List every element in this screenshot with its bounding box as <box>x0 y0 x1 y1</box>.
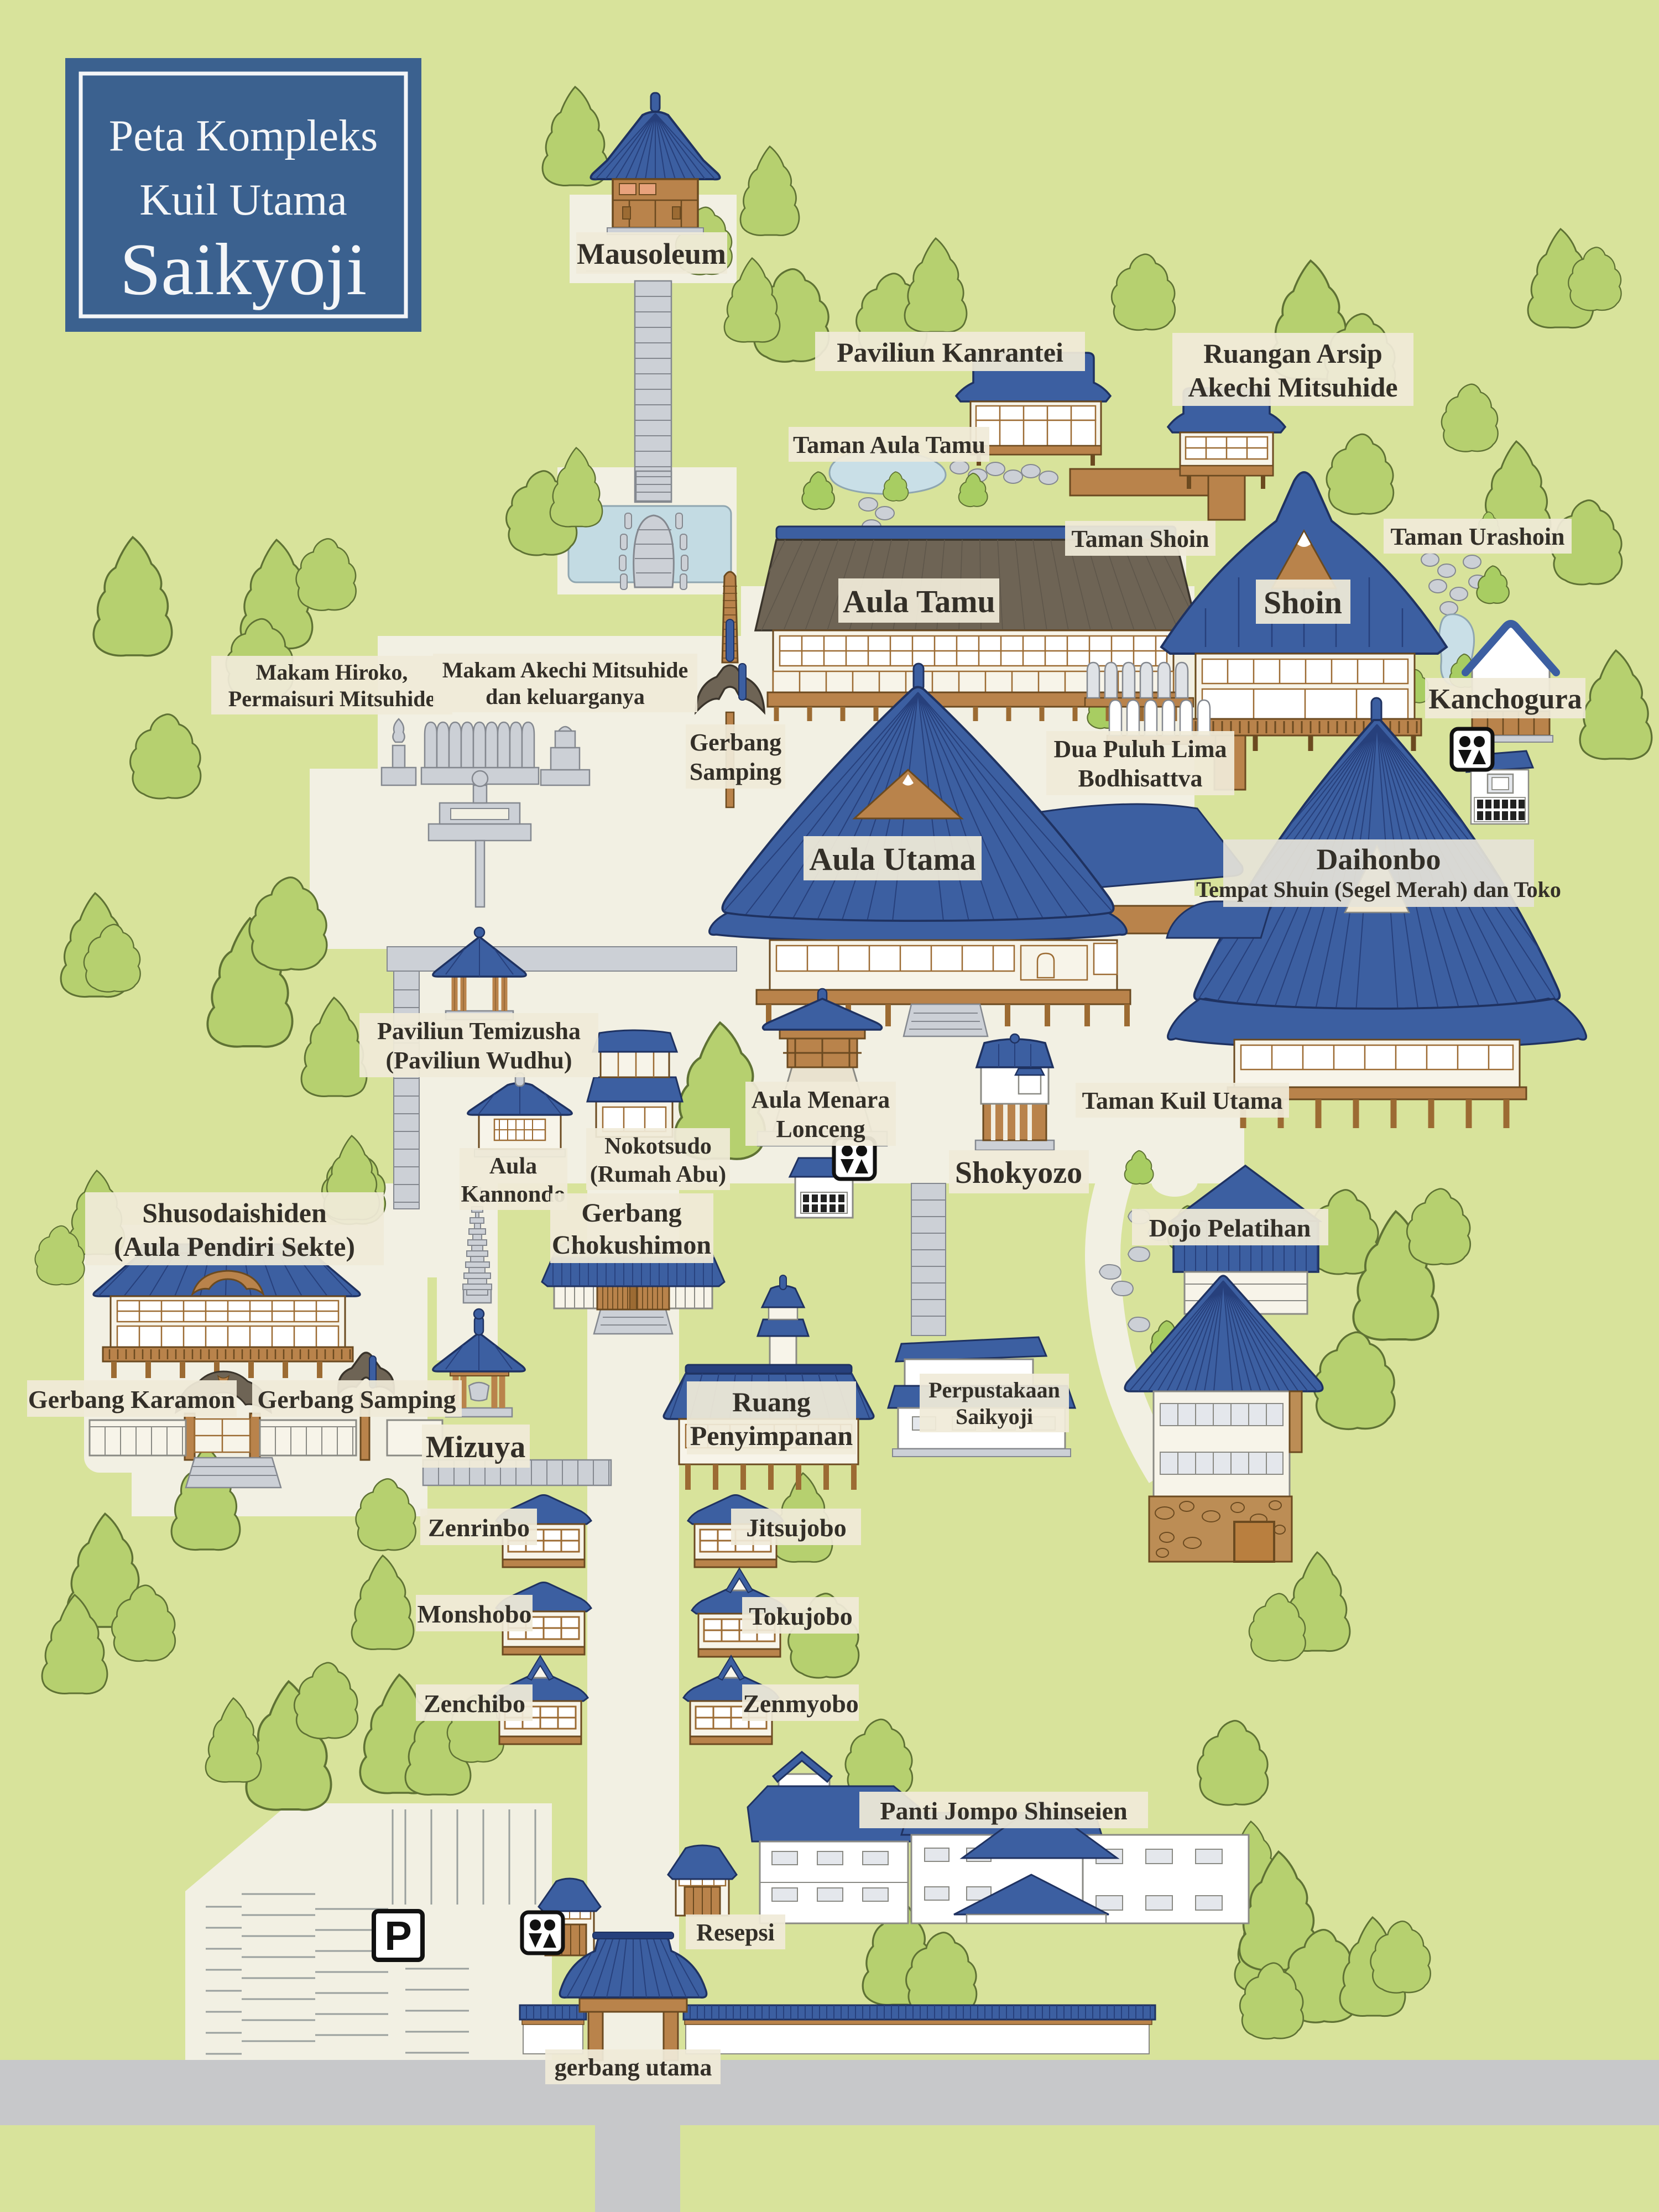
svg-text:Mizuya: Mizuya <box>426 1430 525 1464</box>
svg-text:Gerbang Karamon: Gerbang Karamon <box>28 1385 235 1413</box>
svg-text:Peta Kompleks: Peta Kompleks <box>109 112 378 160</box>
svg-text:Aula Tamu: Aula Tamu <box>843 583 995 619</box>
svg-text:Makam Hiroko,: Makam Hiroko, <box>256 660 408 685</box>
svg-text:gerbang utama: gerbang utama <box>555 2054 712 2081</box>
svg-text:Zenmyobo: Zenmyobo <box>743 1689 859 1718</box>
svg-text:Chokushimon: Chokushimon <box>552 1230 711 1260</box>
svg-text:Gerbang: Gerbang <box>690 729 781 756</box>
svg-text:Panti Jompo Shinseien: Panti Jompo Shinseien <box>880 1797 1127 1825</box>
svg-text:Daihonbo: Daihonbo <box>1316 843 1441 876</box>
svg-text:Perpustakaan: Perpustakaan <box>928 1378 1060 1402</box>
svg-text:Aula Menara: Aula Menara <box>752 1086 890 1113</box>
svg-text:Tempat Shuin (Segel Merah) dan: Tempat Shuin (Segel Merah) dan Toko <box>1196 877 1561 902</box>
svg-text:Kuil Utama: Kuil Utama <box>139 176 347 225</box>
svg-text:dan keluarganya: dan keluarganya <box>486 684 645 709</box>
svg-text:Gerbang: Gerbang <box>581 1198 681 1228</box>
svg-text:Ruang: Ruang <box>732 1386 811 1417</box>
svg-text:Dua Puluh Lima: Dua Puluh Lima <box>1054 735 1227 763</box>
svg-text:Aula: Aula <box>489 1154 537 1179</box>
svg-text:Makam Akechi Mitsuhide: Makam Akechi Mitsuhide <box>442 658 688 682</box>
svg-text:Bodhisattva: Bodhisattva <box>1078 765 1203 792</box>
svg-text:Paviliun Kanrantei: Paviliun Kanrantei <box>837 337 1063 368</box>
svg-text:Resepsi: Resepsi <box>696 1919 775 1946</box>
svg-text:Shoin: Shoin <box>1264 585 1342 620</box>
svg-text:Samping: Samping <box>690 758 781 785</box>
svg-text:Dojo Pelatihan: Dojo Pelatihan <box>1149 1214 1311 1242</box>
svg-text:(Rumah Abu): (Rumah Abu) <box>590 1162 726 1187</box>
svg-text:Zenchibo: Zenchibo <box>424 1689 525 1718</box>
svg-text:Zenrinbo: Zenrinbo <box>428 1514 530 1542</box>
svg-text:Paviliun Temizusha: Paviliun Temizusha <box>377 1018 581 1045</box>
svg-text:Monshobo: Monshobo <box>417 1600 531 1628</box>
svg-text:Nokotsudo: Nokotsudo <box>604 1134 712 1159</box>
svg-text:Kannondo: Kannondo <box>461 1182 565 1207</box>
svg-text:Mausoleum: Mausoleum <box>577 237 726 270</box>
svg-text:Kanchogura: Kanchogura <box>1428 684 1582 715</box>
svg-text:Taman Aula Tamu: Taman Aula Tamu <box>793 431 985 458</box>
svg-text:Lonceng: Lonceng <box>776 1115 865 1142</box>
svg-text:Taman Shoin: Taman Shoin <box>1071 525 1209 552</box>
svg-text:Jitsujobo: Jitsujobo <box>746 1514 846 1542</box>
svg-text:Permaisuri Mitsuhide: Permaisuri Mitsuhide <box>228 686 435 711</box>
svg-text:Taman Kuil Utama: Taman Kuil Utama <box>1082 1087 1283 1114</box>
svg-text:(Aula Pendiri Sekte): (Aula Pendiri Sekte) <box>114 1231 355 1262</box>
svg-text:Saikyoji: Saikyoji <box>956 1404 1033 1429</box>
svg-text:Saikyoji: Saikyoji <box>120 228 367 310</box>
svg-text:Gerbang Samping: Gerbang Samping <box>257 1385 456 1413</box>
svg-text:Shokyozo: Shokyozo <box>955 1156 1082 1190</box>
svg-text:Ruangan Arsip: Ruangan Arsip <box>1203 338 1383 369</box>
svg-text:Taman Urashoin: Taman Urashoin <box>1390 523 1564 550</box>
svg-text:Aula Utama: Aula Utama <box>809 841 975 877</box>
svg-text:Tokujobo: Tokujobo <box>749 1602 853 1630</box>
svg-text:(Paviliun Wudhu): (Paviliun Wudhu) <box>385 1047 572 1074</box>
svg-text:Shusodaishiden: Shusodaishiden <box>142 1197 327 1228</box>
svg-text:Penyimpanan: Penyimpanan <box>690 1420 853 1451</box>
svg-text:Akechi Mitsuhide: Akechi Mitsuhide <box>1188 372 1397 403</box>
